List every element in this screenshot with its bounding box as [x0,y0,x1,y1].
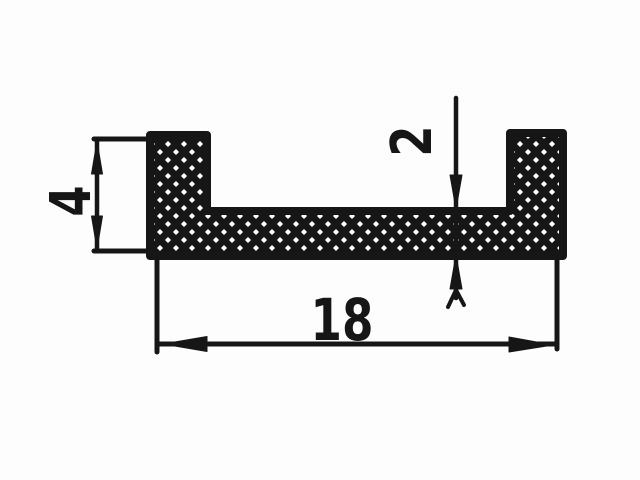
dimension-width: 18 [157,259,557,354]
height-arrow-down-icon [92,216,103,249]
thickness-arrow-down-icon [450,175,462,209]
technical-drawing-sheet: 4 2 18 [0,0,640,480]
height-dimension-label: 4 [38,185,103,216]
width-arrow-right-icon [509,337,553,352]
thickness-arrow-up-icon [450,255,462,289]
dimension-web-thickness: 2 [379,98,464,307]
dimension-height: 4 [38,139,152,251]
thickness-dimension-label: 2 [379,125,444,156]
height-arrow-up-icon [92,141,103,174]
width-arrow-left-icon [163,337,207,352]
u-channel-cross-section-drawing: 4 2 18 [0,0,640,480]
u-channel-profile-shape [150,133,563,256]
width-dimension-label: 18 [311,288,374,355]
